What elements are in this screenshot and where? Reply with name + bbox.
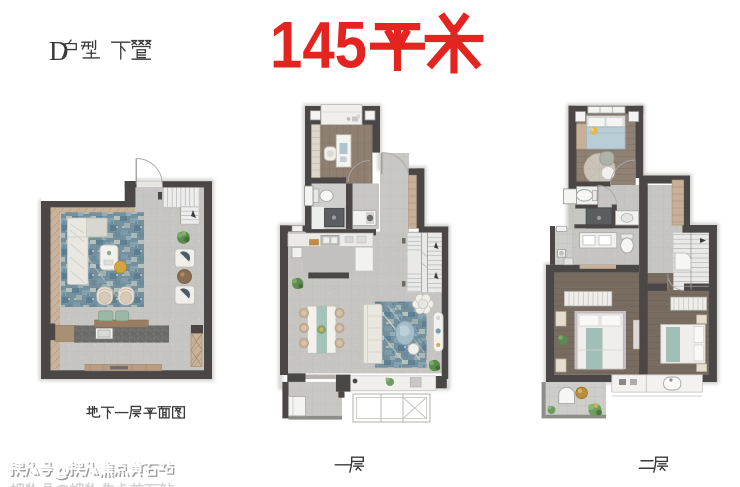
svg-text:145: 145 — [270, 8, 367, 82]
svg-text:@: @ — [54, 483, 70, 487]
svg-text:@: @ — [53, 462, 69, 480]
